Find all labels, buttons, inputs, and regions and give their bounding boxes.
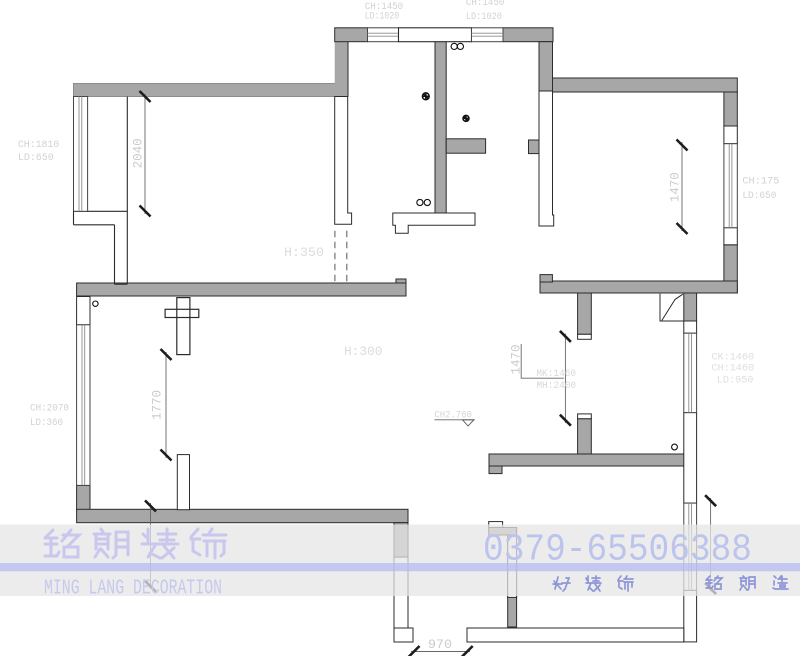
svg-text:LD:1020: LD:1020 bbox=[365, 10, 400, 22]
svg-text:MING LANG DECORATION: MING LANG DECORATION bbox=[44, 577, 222, 601]
svg-text:2040: 2040 bbox=[132, 138, 146, 168]
svg-text:CH:1460: CH:1460 bbox=[711, 362, 754, 374]
svg-text:CH:175: CH:175 bbox=[742, 176, 779, 188]
svg-text:LD:360: LD:360 bbox=[30, 417, 63, 429]
svg-text:H:300: H:300 bbox=[344, 344, 382, 359]
svg-text:MK:1460: MK:1460 bbox=[536, 369, 576, 380]
svg-text:1470: 1470 bbox=[510, 345, 524, 375]
svg-text:H:350: H:350 bbox=[284, 245, 324, 260]
svg-text:970: 970 bbox=[428, 638, 452, 652]
svg-text:1770: 1770 bbox=[151, 390, 165, 420]
svg-text:LD:950: LD:950 bbox=[717, 375, 754, 387]
svg-text:CH:1450: CH:1450 bbox=[466, 0, 505, 9]
svg-text:MH:2400: MH:2400 bbox=[536, 381, 576, 392]
svg-text:LD:650: LD:650 bbox=[742, 190, 776, 202]
svg-text:LD:1020: LD:1020 bbox=[466, 11, 502, 23]
svg-text:CH:1810: CH:1810 bbox=[18, 139, 59, 151]
svg-text:CH2.760: CH2.760 bbox=[434, 411, 472, 422]
svg-text:0379-65506388: 0379-65506388 bbox=[483, 529, 752, 572]
svg-text:LD:650: LD:650 bbox=[18, 152, 54, 164]
svg-text:1470: 1470 bbox=[669, 172, 683, 202]
svg-text:CH:2070: CH:2070 bbox=[30, 403, 69, 415]
